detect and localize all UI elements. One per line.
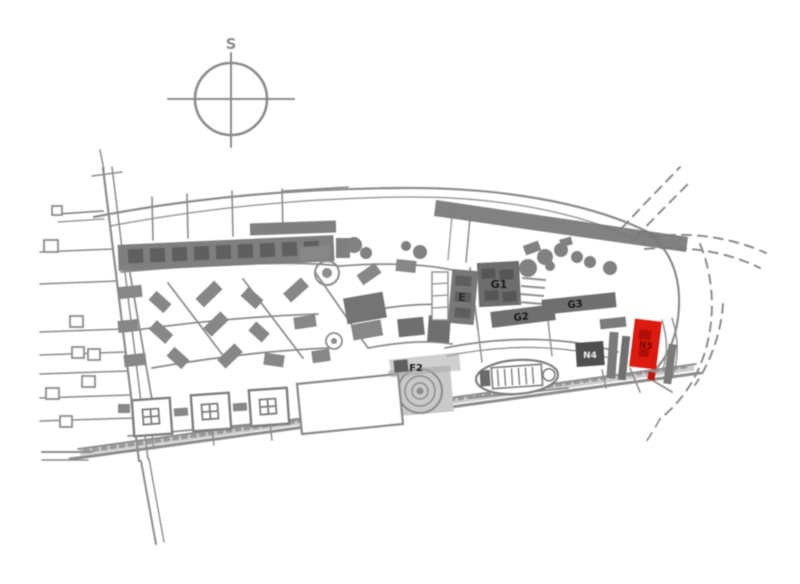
open-field-rect (297, 374, 403, 434)
building-g3: G3 (541, 292, 626, 329)
courtyard-square-1 (132, 398, 172, 437)
left-side-buildings (44, 206, 100, 427)
courtyard-square-3 (249, 388, 289, 427)
courtyard-square-2 (191, 393, 231, 432)
building-g2-label: G2 (513, 311, 529, 324)
site-plan-drawing: S (0, 0, 800, 584)
building-n5-label: N5 (638, 340, 653, 352)
building-g1-label: G1 (491, 278, 508, 291)
interchange-dashed-roads (622, 167, 766, 442)
building-n5-highlighted: N5 (629, 319, 662, 370)
red-annex-block (647, 372, 655, 381)
building-n4-label: N4 (583, 351, 597, 361)
long-bar-building (250, 221, 336, 236)
building-f2-label: F2 (409, 363, 423, 374)
compass: S (168, 35, 294, 147)
building-g1: G1 (477, 261, 521, 307)
building-e-label: E (458, 291, 466, 304)
building-n4: N4 (575, 341, 605, 367)
building-g3-label: G3 (567, 299, 583, 312)
compass-label: S (226, 35, 237, 53)
building-e: E (432, 269, 478, 325)
site-plan-page: S (0, 0, 800, 584)
